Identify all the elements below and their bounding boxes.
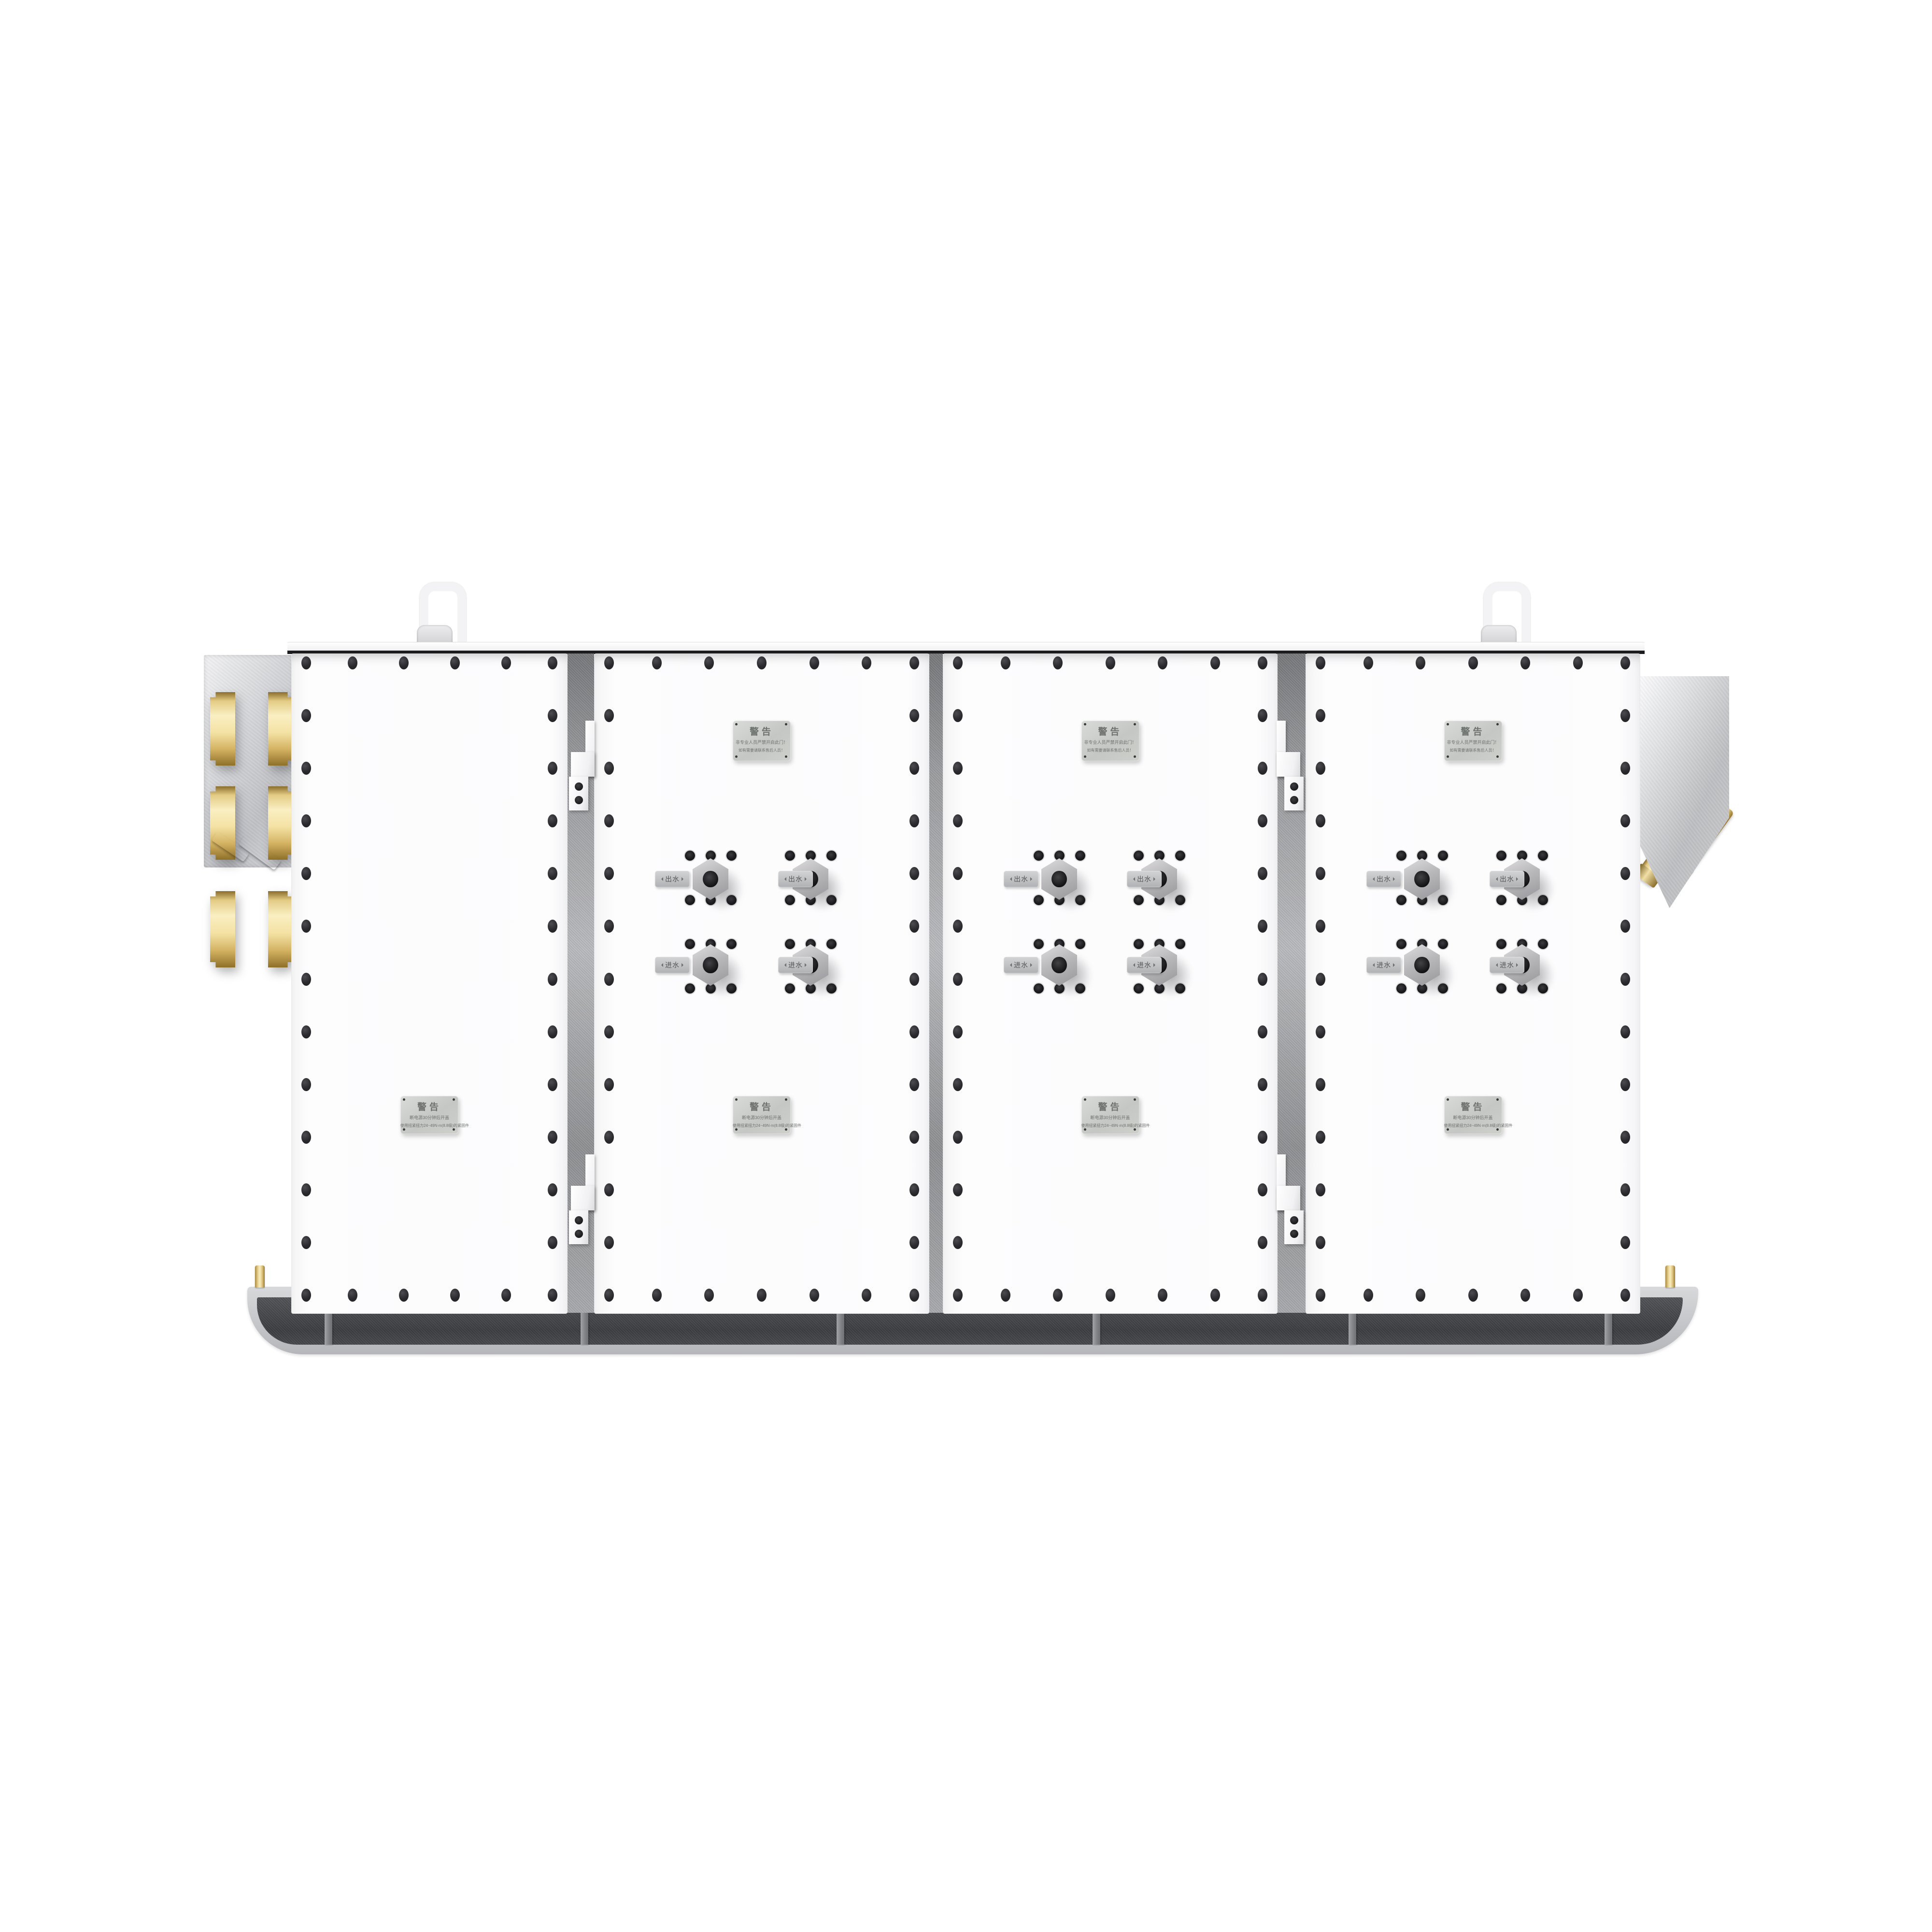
port-bolt: [1175, 851, 1185, 861]
door-bolt: [1620, 920, 1630, 933]
gland-cap-left: [210, 891, 235, 967]
door-bolt: [301, 1131, 311, 1144]
plate-line: 如有需要请联系售后人员！: [1444, 748, 1502, 753]
door-bolt: [953, 1183, 963, 1196]
arrow-icon: [1516, 963, 1520, 967]
port-label-text: 进水: [1014, 960, 1028, 970]
door-bolt: [548, 867, 557, 880]
door-4: 警告非专业人员严禁开启此门！如有需要请联系售后人员！警告断电源30分钟后开盖使用…: [1306, 653, 1640, 1314]
plate-screw: [1134, 1128, 1136, 1131]
door-bolt: [1106, 656, 1115, 669]
hinge-hole: [1290, 782, 1298, 791]
door-bolt: [652, 1289, 662, 1302]
plate-title: 警告: [1081, 724, 1139, 738]
port-bolt: [1496, 939, 1506, 949]
port-hole: [1414, 871, 1429, 887]
door-bolt: [399, 656, 409, 669]
plate-screw: [403, 1128, 405, 1131]
door-bolt: [548, 762, 557, 775]
port-label-text: 进水: [788, 960, 803, 970]
door-bolt: [953, 1025, 963, 1038]
door-bolt: [1620, 1289, 1630, 1302]
door-bolt: [1210, 656, 1220, 669]
arrow-icon: [1030, 877, 1034, 881]
door-bolt: [450, 1289, 460, 1302]
arrow-icon: [805, 963, 809, 967]
plate-line: 断电源30分钟后开盖: [1081, 1114, 1139, 1121]
plate-screw: [1496, 1128, 1499, 1131]
door-2: 警告非专业人员严禁开启此门！如有需要请联系售后人员！警告断电源30分钟后开盖使用…: [594, 653, 929, 1314]
port-bolt: [685, 851, 695, 861]
door-bolt: [704, 656, 714, 669]
door-bolt: [548, 1289, 557, 1302]
port-label: 进水: [1127, 957, 1162, 973]
door-bolt: [548, 656, 557, 669]
arrow-icon: [805, 877, 809, 881]
port-label-text: 进水: [1377, 960, 1391, 970]
door-bolt: [1210, 1289, 1220, 1302]
door-bolt: [953, 709, 963, 722]
door-bolt: [1620, 867, 1630, 880]
door-bolt: [301, 1183, 311, 1196]
door-bolt: [604, 867, 614, 880]
arrow-icon: [1494, 963, 1498, 967]
port-label: 出水: [1366, 871, 1401, 887]
door-bolt: [953, 656, 963, 669]
door-bolt: [1001, 656, 1010, 669]
door-bolt: [548, 1025, 557, 1038]
plate-line: 使用扭紧扭力24~49N·m(8.8级)的紧固件: [1444, 1123, 1502, 1128]
port-label-text: 出水: [1500, 874, 1514, 884]
port-label-text: 进水: [1137, 960, 1151, 970]
plate-title: 警告: [1081, 1100, 1139, 1113]
plate-line: 非专业人员严禁开启此门！: [1444, 739, 1502, 745]
door-bolt: [1620, 762, 1630, 775]
hinge-hole: [575, 1230, 583, 1238]
port-label-text: 出水: [1377, 874, 1391, 884]
plate-title: 警告: [733, 1100, 791, 1113]
door-bolt: [1316, 1289, 1325, 1302]
arrow-icon: [1371, 963, 1375, 967]
door-bolt: [1258, 814, 1267, 827]
door-bolt: [301, 709, 311, 722]
port-bolt: [726, 939, 737, 949]
door-gap: [928, 653, 943, 1313]
port-label-text: 进水: [665, 960, 680, 970]
port-bolt: [1538, 939, 1548, 949]
door-bolt: [548, 1236, 557, 1249]
door-bolt: [1573, 1289, 1583, 1302]
port-bolt: [1034, 983, 1044, 994]
arrow-icon: [1393, 877, 1397, 881]
door-bolt: [604, 1025, 614, 1038]
door-bolt: [1316, 1078, 1325, 1091]
door-bolt: [909, 709, 919, 722]
port-bolt: [1134, 895, 1144, 905]
port-bolt: [785, 895, 795, 905]
port-label-text: 进水: [1500, 960, 1514, 970]
plate-title: 警告: [400, 1100, 458, 1113]
door-bolt: [1258, 867, 1267, 880]
arrow-icon: [1494, 877, 1498, 881]
door-bolt: [1620, 973, 1630, 986]
plate-line: 断电源30分钟后开盖: [733, 1114, 791, 1121]
arrow-icon: [1371, 877, 1375, 881]
door-bolt: [862, 1289, 871, 1302]
plate-screw: [1134, 755, 1136, 758]
door-bolt: [1258, 656, 1267, 669]
door-bolt: [604, 1078, 614, 1091]
door-bolt: [1258, 709, 1267, 722]
gland-body: [231, 699, 272, 759]
door-bolt: [1316, 1131, 1325, 1144]
warning-plate-top: 警告非专业人员严禁开启此门！如有需要请联系售后人员！: [1081, 721, 1139, 761]
door-bolt: [1053, 656, 1063, 669]
hinge-step: [1277, 752, 1300, 777]
door-bolt: [604, 1236, 614, 1249]
arrow-icon: [659, 963, 663, 967]
port-bolt: [1396, 895, 1406, 905]
door-bolt: [757, 656, 767, 669]
arrow-icon: [1030, 963, 1034, 967]
plate-line: 使用扭紧扭力24~49N·m(8.8级)的紧固件: [400, 1123, 458, 1128]
port-hole: [1051, 871, 1066, 887]
port-bolt: [1134, 851, 1144, 861]
hinge-plate: [1284, 1210, 1304, 1244]
port-label: 出水: [1004, 871, 1038, 887]
door-bolt: [909, 1289, 919, 1302]
door-bolt: [1620, 1236, 1630, 1249]
arrow-icon: [1008, 963, 1012, 967]
door-bolt: [604, 709, 614, 722]
port-bolt: [1134, 939, 1144, 949]
door-bolt: [1620, 814, 1630, 827]
door-bolt: [953, 1236, 963, 1249]
door-3: 警告非专业人员严禁开启此门！如有需要请联系售后人员！警告断电源30分钟后开盖使用…: [943, 653, 1278, 1314]
port-label-text: 出水: [1014, 874, 1028, 884]
door-bolt: [953, 973, 963, 986]
port-bolt: [685, 983, 695, 994]
door-bolt: [1316, 973, 1325, 986]
door-bolt: [604, 1289, 614, 1302]
arrow-icon: [1131, 877, 1135, 881]
door-bolt: [399, 1289, 409, 1302]
door-bolt: [909, 1183, 919, 1196]
door-bolt: [301, 973, 311, 986]
door-bolt: [604, 814, 614, 827]
door-bolt: [1468, 1289, 1478, 1302]
door-bolt: [1258, 1025, 1267, 1038]
hinge-plate: [569, 777, 588, 810]
port-label-text: 出水: [788, 874, 803, 884]
door-bolt: [909, 656, 919, 669]
door-bolt: [501, 656, 511, 669]
warning-plate-bottom: 警告断电源30分钟后开盖使用扭紧扭力24~49N·m(8.8级)的紧固件: [1081, 1096, 1139, 1134]
port-bolt: [1075, 939, 1085, 949]
door-bolt: [1316, 709, 1325, 722]
door-bolt: [1364, 1289, 1373, 1302]
port-bolt: [1396, 851, 1406, 861]
warning-plate-bottom: 警告断电源30分钟后开盖使用扭紧扭力24~49N·m(8.8级)的紧固件: [1444, 1096, 1502, 1134]
hinge-plate: [1284, 777, 1304, 810]
port-bolt: [826, 851, 837, 861]
port-bolt: [1438, 939, 1448, 949]
warning-plate-top: 警告非专业人员严禁开启此门！如有需要请联系售后人员！: [733, 721, 791, 761]
port-hole: [703, 957, 718, 973]
port-bolt: [1438, 851, 1448, 861]
door-bolt: [604, 656, 614, 669]
door-bolt: [301, 814, 311, 827]
door-bolt: [909, 1078, 919, 1091]
port-bolt: [1496, 983, 1506, 994]
port-bolt: [1134, 983, 1144, 994]
gland-pin: [252, 892, 259, 900]
door-bolt: [301, 1289, 311, 1302]
hinge-hole: [1290, 1216, 1298, 1224]
plate-screw: [1447, 1128, 1449, 1131]
door-bolt: [1258, 1078, 1267, 1091]
door-bolt: [1620, 1078, 1630, 1091]
enclosure-render: 警告断电源30分钟后开盖使用扭紧扭力24~49N·m(8.8级)的紧固件警告非专…: [0, 0, 1932, 1932]
door-bolt: [953, 814, 963, 827]
plate-screw: [785, 755, 787, 758]
port-bolt: [685, 939, 695, 949]
door-bolt: [301, 1025, 311, 1038]
top-flange: [287, 642, 1645, 654]
door-bolt: [909, 1236, 919, 1249]
hinge-hole: [1290, 1230, 1298, 1238]
plate-line: 非专业人员严禁开启此门！: [1081, 739, 1139, 745]
door-bolt: [1316, 656, 1325, 669]
door-1: 警告断电源30分钟后开盖使用扭紧扭力24~49N·m(8.8级)的紧固件: [291, 653, 568, 1314]
door-bolt: [604, 973, 614, 986]
gland-body: [231, 898, 272, 961]
door-bolt: [953, 762, 963, 775]
port-label: 出水: [1490, 871, 1524, 887]
gland-pin: [252, 693, 259, 701]
port-bolt: [1496, 851, 1506, 861]
port-label: 进水: [1490, 957, 1524, 973]
door-bolt: [953, 1131, 963, 1144]
hinge-hole: [575, 796, 583, 804]
arrow-icon: [1008, 877, 1012, 881]
door-bolt: [862, 656, 871, 669]
arrow-icon: [682, 963, 685, 967]
door-bolt: [1316, 920, 1325, 933]
door-bolt: [953, 867, 963, 880]
door-bolt: [604, 1131, 614, 1144]
door-bolt: [909, 762, 919, 775]
port-bolt: [1496, 895, 1506, 905]
plate-line: 非专业人员严禁开启此门！: [733, 739, 791, 745]
hinge-hole: [1290, 796, 1298, 804]
door-bolt: [953, 920, 963, 933]
port-hole: [1051, 957, 1066, 973]
door-bolt: [548, 973, 557, 986]
door-bolt: [348, 656, 357, 669]
port-label: 出水: [655, 871, 690, 887]
port-bolt: [1396, 939, 1406, 949]
door-bolt: [757, 1289, 767, 1302]
arrow-icon: [659, 877, 663, 881]
port-bolt: [785, 939, 795, 949]
door-bolt: [301, 762, 311, 775]
door-bolt: [1316, 1236, 1325, 1249]
door-bolt: [1316, 762, 1325, 775]
plate-screw: [735, 1128, 738, 1131]
door-bolt: [909, 1131, 919, 1144]
hinge-plate: [569, 1210, 588, 1244]
door-bolt: [909, 867, 919, 880]
port-bolt: [1175, 939, 1185, 949]
hinge-step: [1277, 1186, 1300, 1210]
door-bolt: [810, 656, 819, 669]
door-bolt: [1053, 1289, 1063, 1302]
door-bolt: [548, 814, 557, 827]
door-bolt: [1620, 656, 1630, 669]
plate-screw: [1496, 755, 1499, 758]
gland-cap-right: [268, 891, 293, 967]
port-bolt: [1034, 895, 1044, 905]
port-bolt: [1538, 851, 1548, 861]
door-bolt: [1258, 920, 1267, 933]
door-bolt: [1573, 656, 1583, 669]
door-bolt: [548, 920, 557, 933]
cable-gland: [210, 692, 293, 766]
door-bolt: [909, 973, 919, 986]
door-bolt: [501, 1289, 511, 1302]
door-bolt: [1620, 1183, 1630, 1196]
port-label: 进水: [778, 957, 813, 973]
plate-line: 如有需要请联系售后人员！: [1081, 748, 1139, 753]
cable-gland: [210, 891, 293, 967]
hinge-step: [571, 752, 595, 777]
plate-screw: [453, 1128, 455, 1131]
door-bolt: [450, 656, 460, 669]
port-bolt: [1034, 939, 1044, 949]
door-bolt: [548, 1078, 557, 1091]
arrow-icon: [782, 963, 786, 967]
door-bolt: [1158, 656, 1167, 669]
plate-screw: [1084, 1128, 1086, 1131]
door-bolt: [1364, 656, 1373, 669]
port-bolt: [785, 851, 795, 861]
door-bolt: [909, 1025, 919, 1038]
ground-stud: [255, 1265, 265, 1288]
hinge-step: [571, 1186, 595, 1210]
gland-cap-right: [268, 786, 293, 860]
door-bolt: [1620, 709, 1630, 722]
door-bolt: [953, 1078, 963, 1091]
door-bolt: [909, 814, 919, 827]
port-bolt: [1034, 851, 1044, 861]
door-bolt: [1416, 656, 1425, 669]
door-bolt: [548, 709, 557, 722]
door-bolt: [1258, 762, 1267, 775]
door-bolt: [301, 656, 311, 669]
port-label-text: 出水: [665, 874, 680, 884]
door-bolt: [1258, 1183, 1267, 1196]
arrow-icon: [1393, 963, 1397, 967]
door-bolt: [301, 1236, 311, 1249]
door-bolt: [1158, 1289, 1167, 1302]
arrow-icon: [1131, 963, 1135, 967]
port-label: 进水: [655, 957, 690, 973]
port-label: 出水: [1127, 871, 1162, 887]
warning-plate-bottom: 警告断电源30分钟后开盖使用扭紧扭力24~49N·m(8.8级)的紧固件: [733, 1096, 791, 1134]
door-bolt: [1258, 973, 1267, 986]
hinge-hole: [575, 782, 583, 791]
plate-title: 警告: [1444, 1100, 1502, 1113]
door-bolt: [604, 920, 614, 933]
port-label: 出水: [778, 871, 813, 887]
arrow-icon: [1153, 963, 1157, 967]
port-label: 进水: [1004, 957, 1038, 973]
gland-cap-right: [268, 692, 293, 766]
port-bolt: [785, 983, 795, 994]
door-bolt: [704, 1289, 714, 1302]
arrow-icon: [1516, 877, 1520, 881]
plate-screw: [735, 755, 738, 758]
door-bolt: [1316, 814, 1325, 827]
door-bolt: [1258, 1236, 1267, 1249]
warning-plate-top: 警告非专业人员严禁开启此门！如有需要请联系售后人员！: [1444, 721, 1502, 761]
door-bolt: [604, 762, 614, 775]
door-bolt: [909, 920, 919, 933]
port-hole: [1414, 957, 1429, 973]
door-bolt: [1620, 1025, 1630, 1038]
door-bolt: [652, 656, 662, 669]
door-bolt: [1468, 656, 1478, 669]
arrow-icon: [1153, 877, 1157, 881]
port-bolt: [685, 895, 695, 905]
port-hole: [703, 871, 718, 887]
plate-line: 断电源30分钟后开盖: [1444, 1114, 1502, 1121]
arrow-icon: [782, 877, 786, 881]
door-bolt: [548, 1131, 557, 1144]
door-bolt: [953, 1289, 963, 1302]
plate-screw: [1084, 755, 1086, 758]
plate-line: 使用扭紧扭力24~49N·m(8.8级)的紧固件: [733, 1123, 791, 1128]
gap-texture: [928, 653, 943, 1313]
port-label-text: 出水: [1137, 874, 1151, 884]
plate-title: 警告: [1444, 724, 1502, 738]
door-bolt: [1106, 1289, 1115, 1302]
arrow-icon: [682, 877, 685, 881]
door-bolt: [604, 1183, 614, 1196]
door-bolt: [1001, 1289, 1010, 1302]
plate-line: 如有需要请联系售后人员！: [733, 748, 791, 753]
warning-plate-bottom: 警告断电源30分钟后开盖使用扭紧扭力24~49N·m(8.8级)的紧固件: [400, 1096, 458, 1134]
door-bolt: [810, 1289, 819, 1302]
door-bolt: [1316, 1183, 1325, 1196]
door-bolt: [1258, 1289, 1267, 1302]
door-bolt: [301, 867, 311, 880]
port-bolt: [1396, 983, 1406, 994]
door-bolt: [548, 1183, 557, 1196]
door-bolt: [301, 1078, 311, 1091]
door-bolt: [1258, 1131, 1267, 1144]
hinge-hole: [575, 1216, 583, 1224]
plate-screw: [1447, 755, 1449, 758]
door-bolt: [1520, 656, 1530, 669]
gland-cap-left: [210, 692, 235, 766]
door-bolt: [301, 920, 311, 933]
port-label: 进水: [1366, 957, 1401, 973]
door-bolt: [348, 1289, 357, 1302]
door-bolt: [1316, 1025, 1325, 1038]
door-bolt: [1416, 1289, 1425, 1302]
